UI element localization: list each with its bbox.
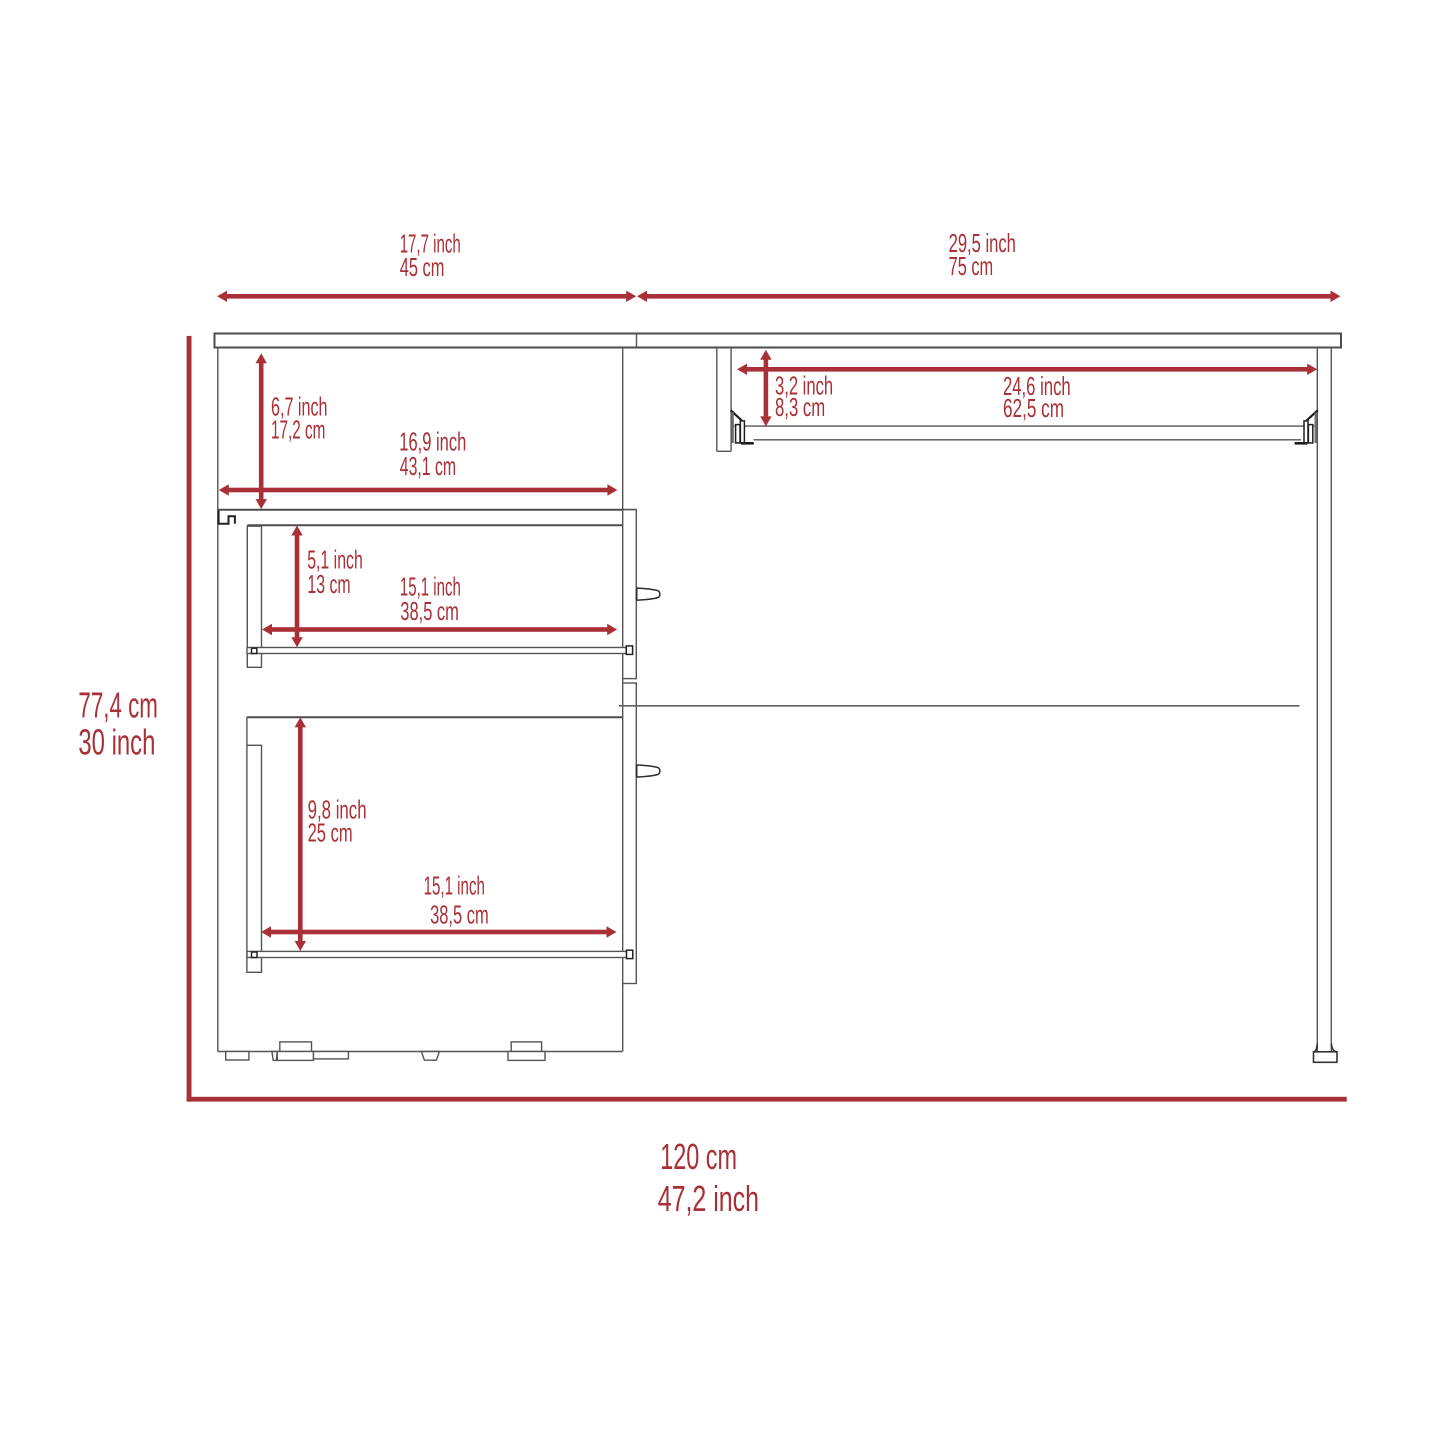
- svg-text:17,2 cm: 17,2 cm: [271, 415, 325, 445]
- svg-text:47,2 inch: 47,2 inch: [658, 1178, 759, 1219]
- svg-text:120 cm: 120 cm: [660, 1136, 737, 1177]
- svg-text:43,1 cm: 43,1 cm: [400, 451, 456, 481]
- svg-text:62,5 cm: 62,5 cm: [1003, 393, 1064, 423]
- svg-text:45 cm: 45 cm: [400, 252, 445, 282]
- svg-text:75 cm: 75 cm: [949, 251, 994, 281]
- svg-text:8,3 cm: 8,3 cm: [775, 392, 825, 422]
- svg-text:15,1 inch: 15,1 inch: [424, 871, 485, 901]
- svg-text:13 cm: 13 cm: [307, 569, 350, 599]
- svg-text:25 cm: 25 cm: [308, 817, 353, 847]
- svg-text:38,5 cm: 38,5 cm: [400, 596, 459, 626]
- svg-text:30 inch: 30 inch: [78, 722, 155, 763]
- svg-text:38,5 cm: 38,5 cm: [430, 900, 489, 930]
- svg-text:77,4 cm: 77,4 cm: [78, 684, 157, 725]
